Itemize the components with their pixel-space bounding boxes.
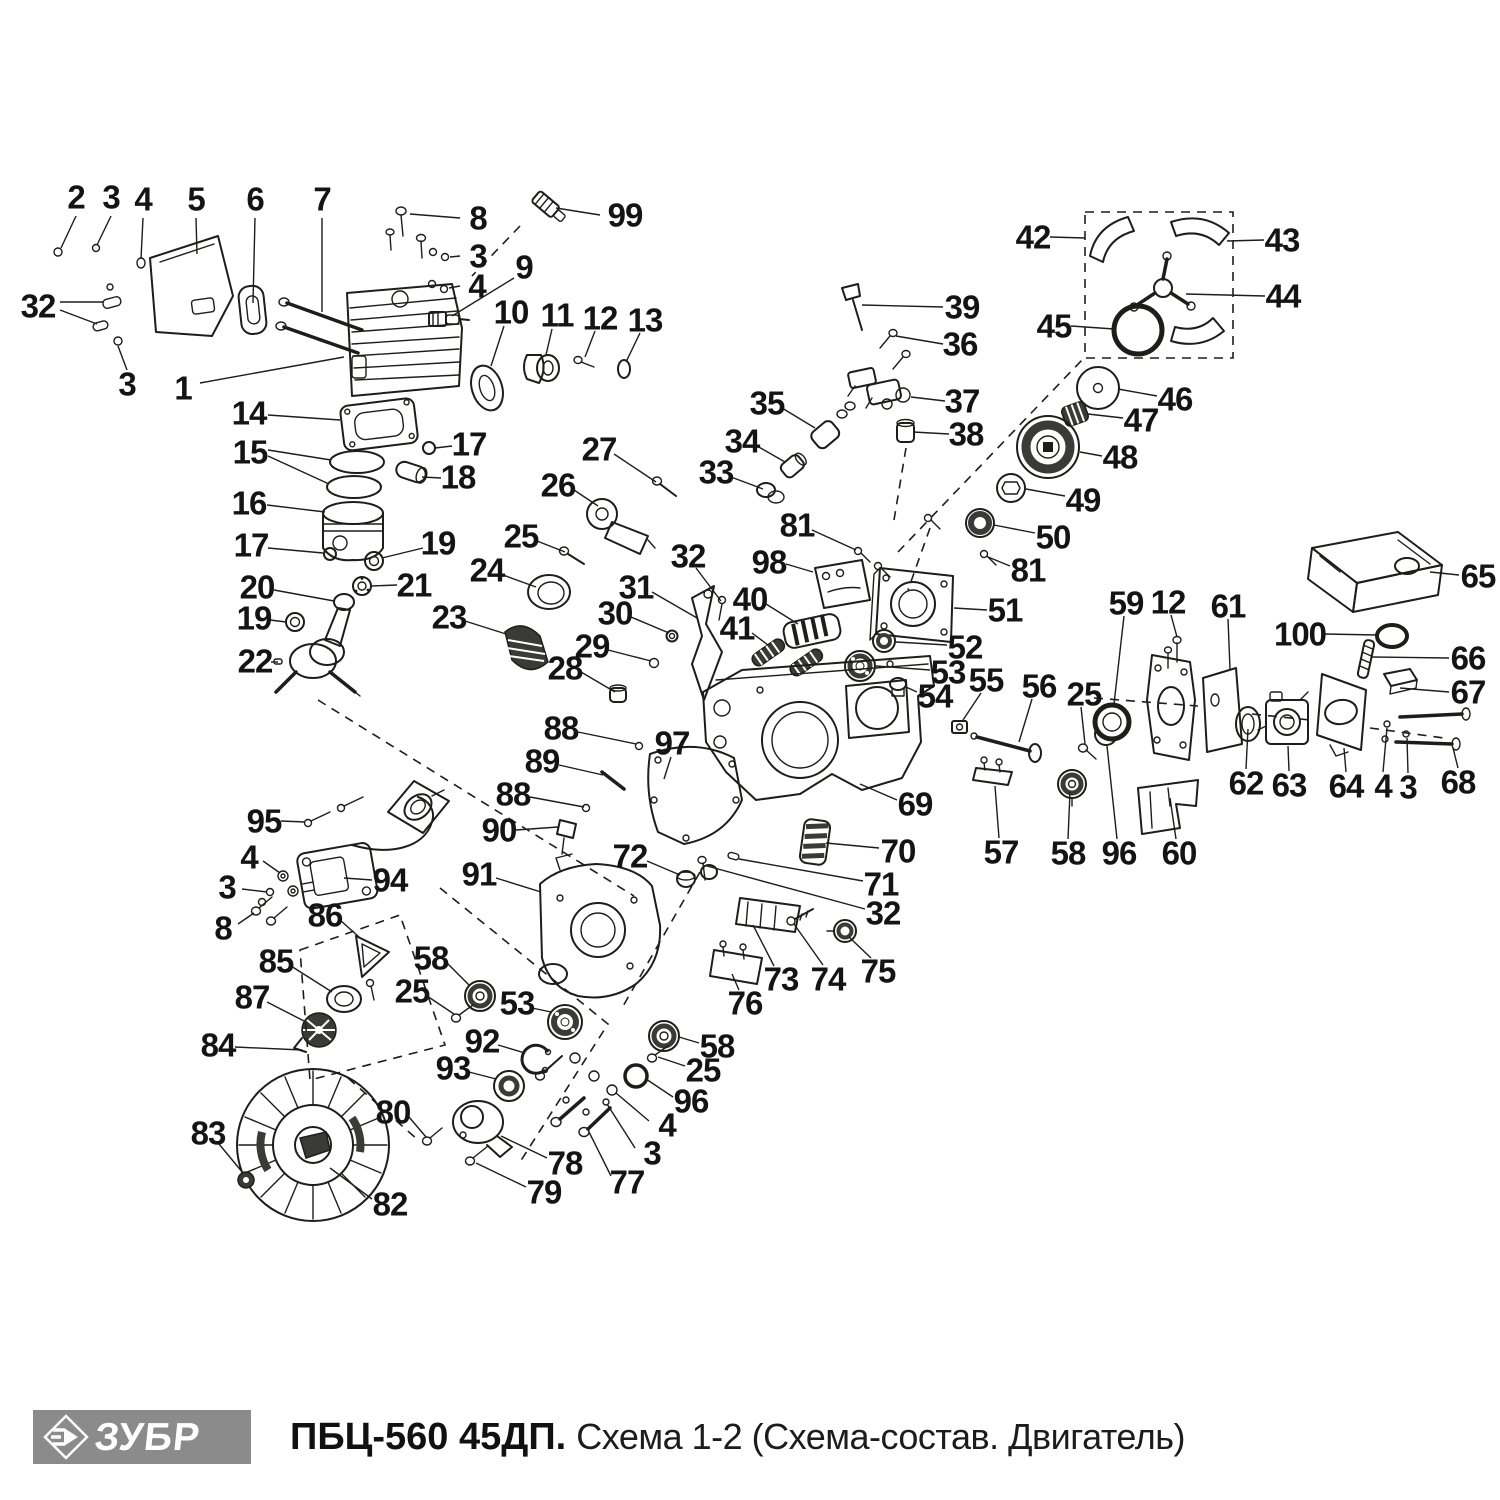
leader-line-36 [896,336,943,344]
callout-84: 84 [201,1027,237,1064]
callout-2: 2 [67,179,85,216]
leader-line-15 [268,450,331,460]
leader-line-95 [281,821,305,822]
part-washer-29 [650,659,659,668]
callout-32: 32 [21,288,56,325]
leader-line-70 [826,843,879,848]
callout-7: 7 [313,181,330,218]
schema-title: ПБЦ-560 45ДП. Схема 1-2 (Схема-состав. Д… [290,1402,1185,1472]
part-bearing-19b [286,613,304,631]
leader-line-93 [469,1072,496,1079]
callout-14: 14 [232,395,268,432]
callout-62: 62 [1229,765,1264,802]
callout-3: 3 [102,179,120,216]
callout-80: 80 [376,1094,411,1131]
callout-56: 56 [1022,668,1057,705]
part-screw-88b [583,805,590,812]
part-heat-shield [1138,780,1198,834]
part-cylinder-gasket [340,398,419,452]
callout-3: 3 [643,1135,661,1172]
leader-line-66 [1372,657,1449,658]
callout-88: 88 [544,710,579,747]
part-buffer-58a [1058,770,1086,806]
leader-line-87 [267,1002,304,1021]
callout-53: 53 [500,985,535,1022]
part-fuel-grommet [757,483,784,503]
callout-91: 91 [462,856,497,893]
callout-65: 65 [1461,558,1496,595]
leader-line-56 [1019,699,1032,742]
leader-line-17 [268,548,323,553]
part-screws-12b [1165,637,1182,669]
part-exhaust-gasket [466,361,509,414]
exploded-parts-diagram: 2345678993491011121332311415161720192217… [0,0,1500,1500]
part-muffler-gasket [238,285,268,335]
callout-46: 46 [1158,381,1193,418]
schema-title-model: ПБЦ-560 45ДП. [290,1416,566,1459]
leader-line-57 [995,786,999,838]
leader-line-77 [589,1132,611,1176]
leader-line-16 [267,505,325,512]
part-breather-90 [557,820,576,854]
part-piston-pin [394,460,428,485]
part-spring-screw-66 [1357,639,1375,678]
callout-29: 29 [575,628,610,665]
callout-10: 10 [494,294,529,331]
fastener-group-topleft [54,245,145,346]
callout-22: 22 [238,643,273,680]
part-clutch-assembly [1085,212,1233,358]
part-screw-25a [560,547,585,564]
callout-15: 15 [233,434,268,471]
leader-line-86 [340,920,359,937]
part-piston-rings [327,451,384,498]
leader-line-58 [447,963,469,985]
leader-line-49 [1026,489,1065,496]
leader-line-30 [631,617,669,633]
callout-69: 69 [898,786,933,823]
leader-line-51 [954,608,987,610]
callout-4: 4 [240,839,259,876]
callout-35: 35 [750,385,785,422]
callout-12: 12 [583,300,618,337]
leader-line-2 [61,216,76,248]
leader-line-92 [498,1045,525,1053]
leader-line-20 [274,590,334,601]
callout-61: 61 [1211,588,1246,625]
leader-line-45 [1071,326,1114,329]
part-cylinder [347,284,462,396]
callout-75: 75 [861,953,896,990]
callout-50: 50 [1036,519,1071,556]
callout-58: 58 [1051,835,1086,872]
leader-line-19 [270,620,286,622]
leader-line-69 [860,784,897,800]
leader-line-71 [739,859,863,881]
part-oil-pump-cup [528,575,570,609]
part-buffer-58c [649,1021,679,1051]
callout-81: 81 [780,507,815,544]
callout-4: 4 [468,268,487,305]
leader-line-53 [532,1008,551,1012]
leader-line-58 [1068,792,1070,839]
callout-48: 48 [1103,439,1138,476]
part-carburetor [1258,692,1308,744]
leader-line-14 [268,415,340,420]
leader-line-44 [1186,294,1265,296]
callout-60: 60 [1162,835,1197,872]
callout-4: 4 [1374,768,1393,805]
leader-line-3 [242,889,267,892]
callout-12: 12 [1151,584,1186,621]
part-crankshaft [276,594,360,696]
callout-25: 25 [1067,676,1102,713]
part-needle-cage [353,577,371,595]
callout-70: 70 [881,833,916,870]
part-oil-seal-52 [873,630,895,652]
part-o-ring-100 [1377,625,1407,647]
part-chain-catcher [782,611,842,649]
leader-line-61 [1228,619,1230,669]
part-choke-rod [842,284,862,330]
callout-26: 26 [541,467,576,504]
part-nut-55 [952,721,967,733]
leader-line-28 [581,672,615,692]
leader-line-32 [707,866,865,909]
footer-bar: ЗУБР ПБЦ-560 45ДП. Схема 1-2 (Схема-сост… [0,1402,1500,1472]
part-bearing-50 [966,509,994,537]
callout-67: 67 [1451,674,1486,711]
part-clip-67 [1384,669,1417,694]
part-buffer-58b [465,981,495,1011]
leader-line-3 [607,1104,635,1148]
leader-line-5 [196,218,197,254]
leader-line-50 [994,525,1035,533]
part-sprocket-washer [997,474,1025,502]
leader-line-8 [238,913,254,924]
part-screw-74 [787,909,813,925]
part-oil-worm-gear [505,626,548,670]
leader-line-3 [450,256,460,257]
leader-line-82 [330,1168,372,1199]
leader-line-32 [60,310,97,324]
callout-90: 90 [482,812,517,849]
callout-43: 43 [1265,222,1300,259]
callout-6: 6 [246,181,264,218]
leader-line-4 [616,1093,649,1121]
part-bearing-53b [548,1005,582,1039]
callout-64: 64 [1329,768,1365,805]
callout-34: 34 [725,423,761,460]
callout-1: 1 [174,370,192,407]
leader-line-25 [537,541,565,552]
leader-line-4 [141,218,143,259]
callout-19: 19 [421,525,456,562]
callout-86: 86 [308,897,343,934]
leader-line-24 [503,575,536,587]
callout-100: 100 [1274,616,1326,653]
part-bearing-19a [365,552,383,570]
leader-line-74 [794,924,823,965]
leader-line-4 [449,286,460,288]
leader-line-34 [757,446,785,462]
callout-66: 66 [1451,640,1486,677]
part-washer-85 [327,986,361,1012]
callout-41: 41 [720,610,755,647]
part-circlip-upper [423,442,435,454]
part-ignition-coil [296,797,433,910]
leader-line-88 [578,732,636,744]
callout-59: 59 [1109,585,1144,622]
leader-line-35 [782,408,815,428]
part-bracket-73 [736,898,800,932]
callout-45: 45 [1037,308,1072,345]
leader-line-23 [465,621,506,634]
leader-line-41 [752,633,768,645]
leader-line-3 [97,216,111,245]
callout-38: 38 [949,416,984,453]
leader-line-100 [1324,634,1378,635]
part-bar-guide-plate [815,560,870,608]
callout-95: 95 [247,803,282,840]
leader-line-59 [1114,616,1124,704]
callout-76: 76 [728,985,763,1022]
leader-line-1 [200,357,344,383]
part-air-filter-cover [1308,532,1442,612]
brand-logo: ЗУБР [33,1410,251,1464]
part-flywheel-nut [238,1172,254,1188]
leader-line-18 [422,477,441,478]
leader-line-91 [496,878,541,892]
zubr-logo-icon [43,1414,89,1460]
leader-line-31 [652,592,697,618]
callout-31: 31 [619,569,654,606]
fastener-group-cylinder-head [386,207,449,293]
leader-line-46 [1118,389,1157,396]
part-screw-79 [466,1146,489,1165]
callout-89: 89 [525,743,560,780]
callout-18: 18 [441,459,476,496]
part-lever-57 [973,757,1012,785]
part-av-spring-70 [799,818,831,865]
part-oil-seal-93 [494,1071,524,1101]
part-washer-13 [618,360,630,378]
part-flywheel [237,1069,389,1221]
leader-line-29 [608,650,651,661]
leader-line-88 [530,797,584,807]
callout-87: 87 [235,979,270,1016]
callout-57: 57 [984,834,1019,871]
part-pin-71 [727,852,739,861]
leader-line-72 [647,861,680,875]
leader-line-85 [291,966,332,992]
callout-3: 3 [118,366,136,403]
leader-line-25 [427,996,454,1014]
part-buffer-28 [610,685,626,702]
leader-line-48 [1080,452,1102,456]
parts-layer [54,191,1470,1221]
leader-line-52 [896,642,947,645]
part-fuel-filter [779,450,809,479]
part-buffer-38 [897,420,914,443]
leader-line-81 [988,557,1010,566]
part-screw-12 [574,357,594,368]
callout-93: 93 [436,1050,471,1087]
callout-19: 19 [237,600,272,637]
part-oil-pump [587,499,655,554]
leader-line-62 [1246,729,1248,769]
callout-82: 82 [373,1186,408,1223]
leader-line-81 [812,530,856,550]
leader-line-39 [862,305,943,307]
callout-68: 68 [1441,764,1476,801]
leader-line-58 [679,1037,699,1043]
leader-line-15 [268,456,329,484]
leader-line-65 [1430,572,1459,575]
callout-96: 96 [674,1083,709,1120]
part-clutch-drum [1017,416,1079,478]
leader-line-17 [435,446,452,448]
part-muffler-cover [150,236,233,336]
leader-line-26 [574,490,598,506]
part-crankcase-cover [539,854,660,998]
callout-4: 4 [134,181,153,218]
callout-96: 96 [1102,835,1137,872]
callout-72: 72 [613,838,648,875]
leader-line-33 [731,477,763,489]
leader-line-98 [786,564,813,572]
callout-97: 97 [655,725,690,762]
part-screw-27 [653,477,677,496]
callout-77: 77 [610,1164,645,1201]
leader-line-27 [614,454,656,482]
callout-4: 4 [658,1107,677,1144]
part-screws-36 [880,330,910,370]
leader-line-19 [382,548,423,558]
callout-24: 24 [470,552,506,589]
leader-line-43 [1227,240,1264,241]
callout-58: 58 [414,940,449,977]
part-oil-pump-cover [453,1101,512,1157]
part-screw-25b [1079,744,1097,759]
part-starter-pawl [356,936,389,1000]
callout-83: 83 [191,1115,226,1152]
part-ring-96b [625,1065,647,1087]
callout-98: 98 [752,544,787,581]
part-spark-plug [429,312,469,326]
leader-line-37 [911,397,945,401]
callout-25: 25 [504,518,539,555]
callout-81: 81 [1011,552,1046,589]
leader-line-94 [344,878,372,880]
callout-47: 47 [1124,402,1159,439]
callout-32: 32 [671,538,706,575]
callout-55: 55 [969,662,1004,699]
callout-54: 54 [918,678,954,715]
part-screw-25c [452,1005,474,1022]
part-pin-89 [602,772,624,789]
callout-37: 37 [945,383,980,420]
callout-3: 3 [218,869,236,906]
callout-9: 9 [515,249,533,286]
callout-8: 8 [469,200,487,237]
callout-49: 49 [1066,482,1101,519]
part-fuel-pickup [809,402,855,451]
part-carb-gasket-61 [1203,668,1242,752]
callout-63: 63 [1272,767,1307,804]
schema-title-caption: Схема 1-2 (Схема-состав. Двигатель) [576,1416,1185,1458]
callout-99: 99 [608,197,643,234]
leader-line-38 [913,432,949,434]
leader-line-42 [1050,237,1085,238]
callout-42: 42 [1016,219,1051,256]
callout-73: 73 [764,961,799,998]
leader-line-84 [235,1047,302,1050]
callout-44: 44 [1266,278,1302,315]
leader-line-25 [658,1057,685,1066]
callout-25: 25 [395,973,430,1010]
part-intake-boot [1317,674,1366,756]
leader-line-47 [1088,414,1123,418]
callout-3: 3 [1399,769,1417,806]
part-bracket-76 [710,941,762,984]
callout-27: 27 [582,431,617,468]
callout-51: 51 [988,592,1023,629]
leader-line-25 [1081,707,1085,744]
leader-line-40 [766,604,798,624]
callout-11: 11 [541,297,575,334]
leader-line-4 [263,861,280,873]
callout-17: 17 [234,527,269,564]
part-decompression-valve [531,191,568,225]
callout-21: 21 [397,567,432,604]
callout-8: 8 [214,910,232,947]
part-screw-88a [636,743,643,750]
part-screws-95 [305,797,364,827]
callout-79: 79 [527,1174,562,1211]
part-bolts-68 [1382,708,1470,750]
part-bearing-53a [845,651,875,681]
part-throttle-linkage [848,367,910,409]
leader-line-10 [491,326,504,366]
callout-74: 74 [811,961,847,998]
brand-logo-text: ЗУБР [93,1418,202,1457]
leader-line-6 [253,218,255,303]
leader-line-4 [1383,728,1387,772]
leader-line-96 [646,1079,673,1097]
leader-line-96 [1107,746,1117,839]
callout-17: 17 [452,426,487,463]
callout-16: 16 [232,485,267,522]
leader-line-79 [476,1163,526,1187]
callout-88: 88 [496,776,531,813]
callout-94: 94 [373,862,409,899]
fastener-group-bottom [536,1053,618,1137]
leader-line-21 [371,585,397,586]
callout-39: 39 [945,289,980,326]
part-carb-mount-plate [1147,655,1195,760]
part-coil-fasteners [252,871,299,925]
leader-line-89 [559,765,603,775]
callout-23: 23 [432,599,467,636]
callout-5: 5 [187,181,205,218]
part-intake-elbow [524,355,559,383]
callout-32: 32 [866,895,901,932]
callout-36: 36 [943,326,978,363]
callout-13: 13 [628,302,663,339]
callout-85: 85 [259,943,294,980]
part-plug-cap [388,781,449,833]
